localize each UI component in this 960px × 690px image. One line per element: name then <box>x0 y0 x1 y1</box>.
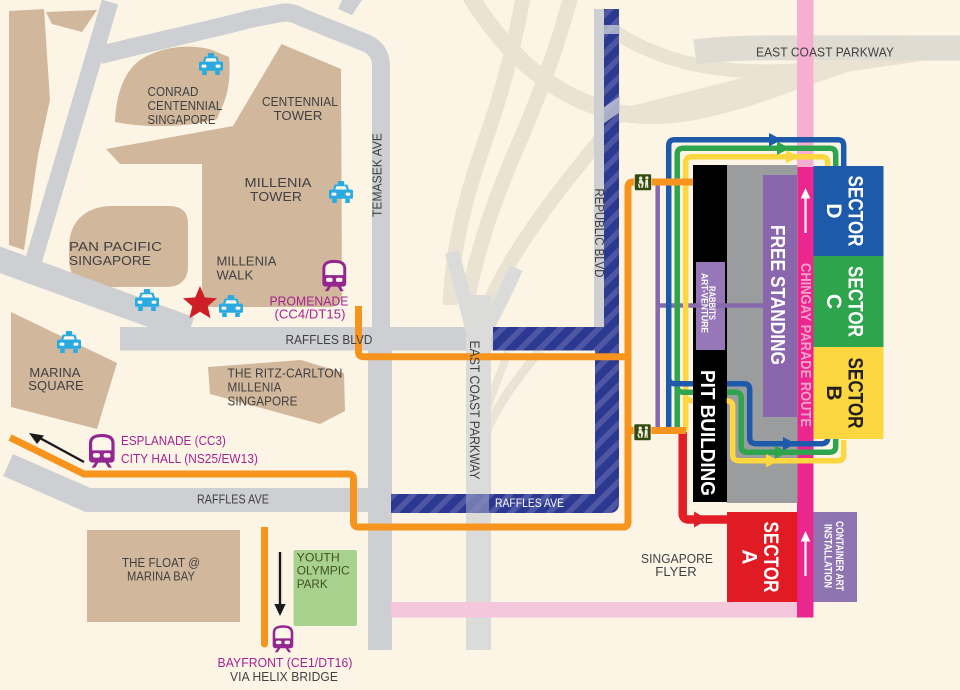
svg-text:CONTAINER ART: CONTAINER ART <box>833 521 845 591</box>
svg-text:FREE STANDING: FREE STANDING <box>766 225 788 365</box>
svg-text:CENTENNIAL: CENTENNIAL <box>262 94 338 109</box>
svg-text:CITY HALL (NS25/EW13): CITY HALL (NS25/EW13) <box>121 451 258 466</box>
svg-text:BAYFRONT (CE1/DT16): BAYFRONT (CE1/DT16) <box>218 655 353 670</box>
svg-text:PAN PACIFIC: PAN PACIFIC <box>69 239 162 254</box>
svg-text:THE RITZ-CARLTON: THE RITZ-CARLTON <box>228 366 343 381</box>
svg-text:SQUARE: SQUARE <box>28 378 84 393</box>
svg-text:D: D <box>822 203 845 218</box>
svg-text:SINGAPORE: SINGAPORE <box>69 253 151 268</box>
svg-text:SECTOR: SECTOR <box>844 266 867 337</box>
svg-text:PIT BUILDING: PIT BUILDING <box>696 370 718 496</box>
svg-text:MILLENIA: MILLENIA <box>228 380 282 395</box>
svg-text:INSTALLATION: INSTALLATION <box>822 524 834 588</box>
svg-text:PARK: PARK <box>297 577 328 591</box>
svg-text:MILLENIA: MILLENIA <box>245 175 312 190</box>
svg-text:A: A <box>738 549 761 564</box>
svg-text:SINGAPORE: SINGAPORE <box>228 394 298 409</box>
svg-text:VIA HELIX BRIDGE: VIA HELIX BRIDGE <box>230 669 338 684</box>
svg-text:CENTENNIAL: CENTENNIAL <box>148 98 223 113</box>
svg-text:EAST COAST PARKWAY: EAST COAST PARKWAY <box>756 45 894 60</box>
svg-text:CONRAD: CONRAD <box>148 84 199 99</box>
svg-text:TOWER: TOWER <box>274 108 323 123</box>
svg-text:ART-VENTURE: ART-VENTURE <box>699 273 710 333</box>
svg-text:CHINGAY PARADE ROUTE: CHINGAY PARADE ROUTE <box>797 263 814 427</box>
svg-text:YOUTH: YOUTH <box>297 551 340 565</box>
svg-text:SECTOR: SECTOR <box>844 358 867 429</box>
svg-text:C: C <box>822 294 845 309</box>
svg-text:REPUBLIC BLVD: REPUBLIC BLVD <box>592 189 607 278</box>
svg-text:TOWER: TOWER <box>250 189 302 204</box>
svg-text:TEMASEK AVE: TEMASEK AVE <box>370 133 385 217</box>
svg-text:WALK: WALK <box>217 268 254 283</box>
svg-text:ESPLANADE (CC3): ESPLANADE (CC3) <box>121 433 226 448</box>
svg-text:EAST COAST PARKWAY: EAST COAST PARKWAY <box>467 341 483 481</box>
svg-text:(CC4/DT15): (CC4/DT15) <box>274 307 345 322</box>
svg-text:SECTOR: SECTOR <box>759 522 782 593</box>
svg-text:SECTOR: SECTOR <box>844 176 867 247</box>
svg-text:OLYMPIC: OLYMPIC <box>297 564 350 578</box>
svg-text:B: B <box>822 385 845 400</box>
svg-text:FLYER: FLYER <box>655 564 696 579</box>
svg-text:RAFFLES AVE: RAFFLES AVE <box>495 496 564 510</box>
svg-text:SINGAPORE: SINGAPORE <box>148 112 216 127</box>
svg-text:RAFFLES AVE: RAFFLES AVE <box>197 492 269 507</box>
svg-text:MILLENIA: MILLENIA <box>217 254 277 269</box>
svg-text:RAFFLES BLVD: RAFFLES BLVD <box>286 332 373 347</box>
svg-text:MARINA BAY: MARINA BAY <box>127 569 195 584</box>
